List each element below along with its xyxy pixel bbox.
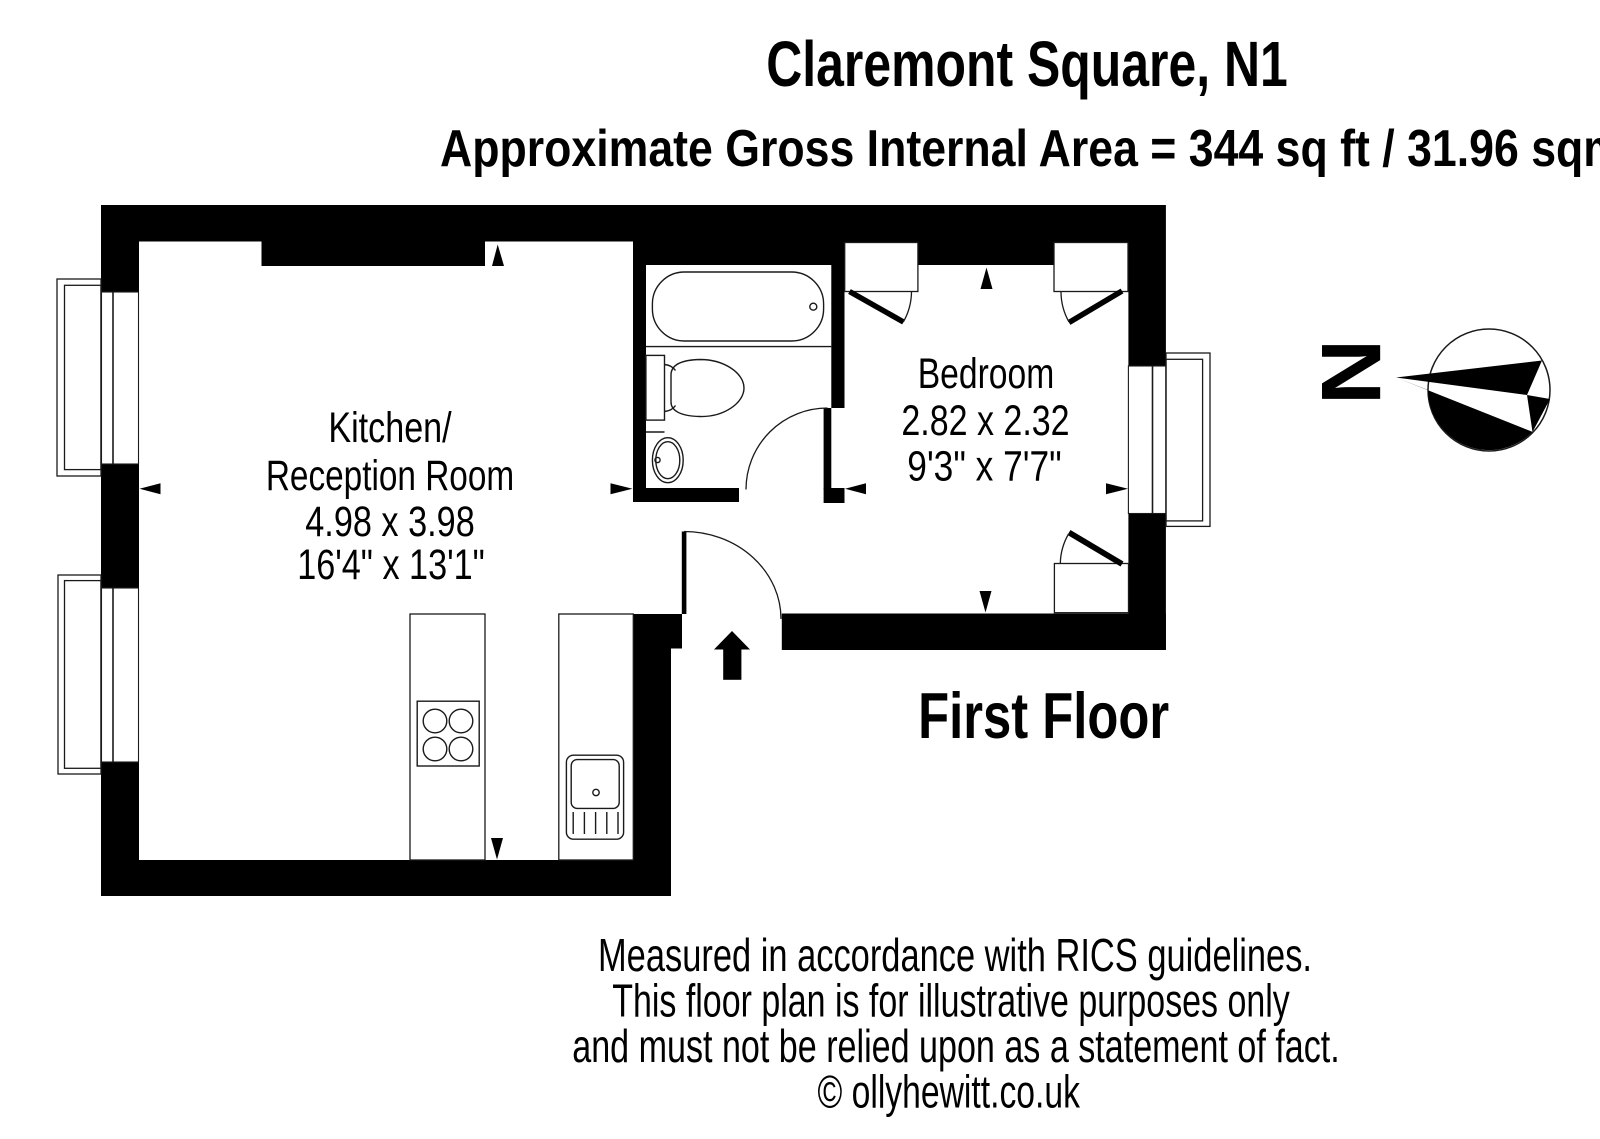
svg-text:and must not be relied upon as: and must not be relied upon as a stateme…: [572, 1020, 1340, 1072]
svg-text:Bedroom: Bedroom: [918, 350, 1055, 398]
svg-text:4.98 x 3.98: 4.98 x 3.98: [305, 498, 475, 546]
svg-text:Kitchen/: Kitchen/: [328, 404, 451, 452]
svg-text:9'3" x 7'7": 9'3" x 7'7": [907, 443, 1061, 491]
svg-text:Claremont Square, N1: Claremont Square, N1: [766, 28, 1288, 100]
svg-text:© ollyhewitt.co.uk: © ollyhewitt.co.uk: [817, 1066, 1080, 1118]
svg-text:Approximate Gross Internal Are: Approximate Gross Internal Area = 344 sq…: [440, 120, 1600, 178]
svg-text:First Floor: First Floor: [918, 679, 1169, 752]
svg-text:2.82 x 2.32: 2.82 x 2.32: [901, 397, 1069, 445]
svg-text:Measured in accordance with RI: Measured in accordance with RICS guideli…: [598, 929, 1312, 981]
svg-text:Reception Room: Reception Room: [266, 452, 514, 500]
svg-text:16'4" x 13'1": 16'4" x 13'1": [297, 541, 485, 589]
svg-text:This floor plan is for illustr: This floor plan is for illustrative purp…: [612, 975, 1290, 1027]
svg-text:N: N: [1304, 339, 1398, 405]
